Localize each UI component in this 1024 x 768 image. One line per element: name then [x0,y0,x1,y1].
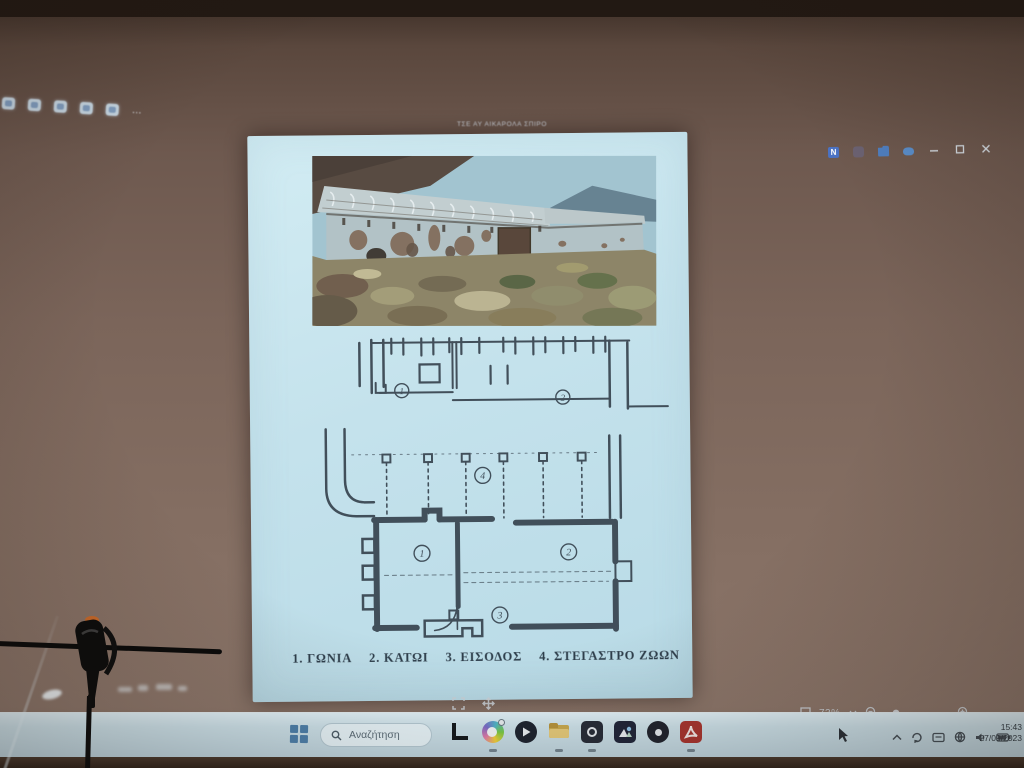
app-icon[interactable] [853,146,864,157]
clock-date: 27/09/2023 [978,733,1022,744]
plan-label-3: 3 [496,610,502,621]
hidden-icons-chevron[interactable] [892,734,902,741]
elevation-label-2: 2 [561,393,566,403]
taskbar-app-photos[interactable] [614,721,636,743]
plan-label-4: 4 [480,471,485,482]
pan-arrows-icon[interactable] [482,697,495,710]
search-icon [331,730,342,741]
windows-taskbar: Αναζήτηση [0,712,1024,759]
restore-button[interactable] [954,143,966,155]
viewer-view-controls [452,697,495,710]
projected-screen-photo: … ΤΣΕ ΑΥ ΑΙΚΑΡΟΛΑ ΣΠΙΡΟ N [0,0,1024,768]
print-icon[interactable] [54,100,68,113]
more-tools-icon[interactable]: … [132,108,143,115]
sync-icon[interactable] [911,732,923,743]
page-view-icon[interactable] [79,102,93,115]
onedrive-cloud-icon[interactable] [903,147,914,155]
window-controls: N [828,138,1024,162]
menu-icon[interactable] [2,97,16,110]
taskbar-app-edge[interactable] [482,721,504,743]
plan-label-1: 1 [419,549,424,560]
ceiling-shadow [0,0,1024,17]
taskbar-search[interactable]: Αναζήτηση [320,723,432,747]
taskbar-app-dark-ring[interactable] [581,721,603,743]
document-page: 1 2 [247,132,692,702]
network-icon[interactable] [954,731,966,743]
table-edge [0,757,1024,768]
save-icon[interactable] [28,99,42,112]
pen-cursor-icon[interactable] [836,727,850,744]
search-placeholder: Αναζήτηση [349,729,400,741]
legend-item-4: 4. ΣΤΕΓΑΣΤΡΟ ΖΩΩΝ [539,648,680,664]
fullscreen-icon[interactable] [452,697,465,710]
taskbar-apps [449,721,719,755]
plan-legend: 1. ΓΩΝΙΑ 2. ΚΑΤΩΙ 3. ΕΙΣΟΔΟΣ 4. ΣΤΕΓΑΣΤΡ… [292,648,688,667]
elevation-label-1: 1 [399,386,404,396]
window-title: ΤΣΕ ΑΥ ΑΙΚΑΡΟΛΑ ΣΠΙΡΟ [392,121,612,128]
onenote-icon[interactable]: N [828,146,839,157]
taskbar-app-explorer[interactable] [548,721,570,743]
clock-time: 15:43 [978,722,1022,733]
taskbar-app-acrobat[interactable] [680,721,702,743]
folder-icon[interactable] [878,145,889,156]
plan-label-2: 2 [566,547,571,558]
start-button[interactable] [290,725,308,743]
legend-item-2: 2. ΚΑΤΩΙ [369,650,429,666]
floor-plan-drawing: 1 2 3 4 [310,422,690,648]
comment-icon[interactable] [105,103,119,116]
legend-item-1: 1. ΓΩΝΙΑ [292,651,352,667]
taskbar-app-cursor[interactable] [449,721,471,743]
elevation-drawing: 1 2 [357,328,673,429]
language-keyboard-icon[interactable] [932,732,945,743]
minimize-button[interactable] [928,144,940,156]
taskbar-app-dark-circle[interactable] [647,721,669,743]
close-button[interactable] [980,143,992,155]
house-photograph [312,156,656,326]
taskbar-app-media[interactable] [515,721,537,743]
legend-item-3: 3. ΕΙΣΟΔΟΣ [445,650,522,666]
taskbar-clock[interactable]: 15:43 27/09/2023 [978,722,1022,745]
